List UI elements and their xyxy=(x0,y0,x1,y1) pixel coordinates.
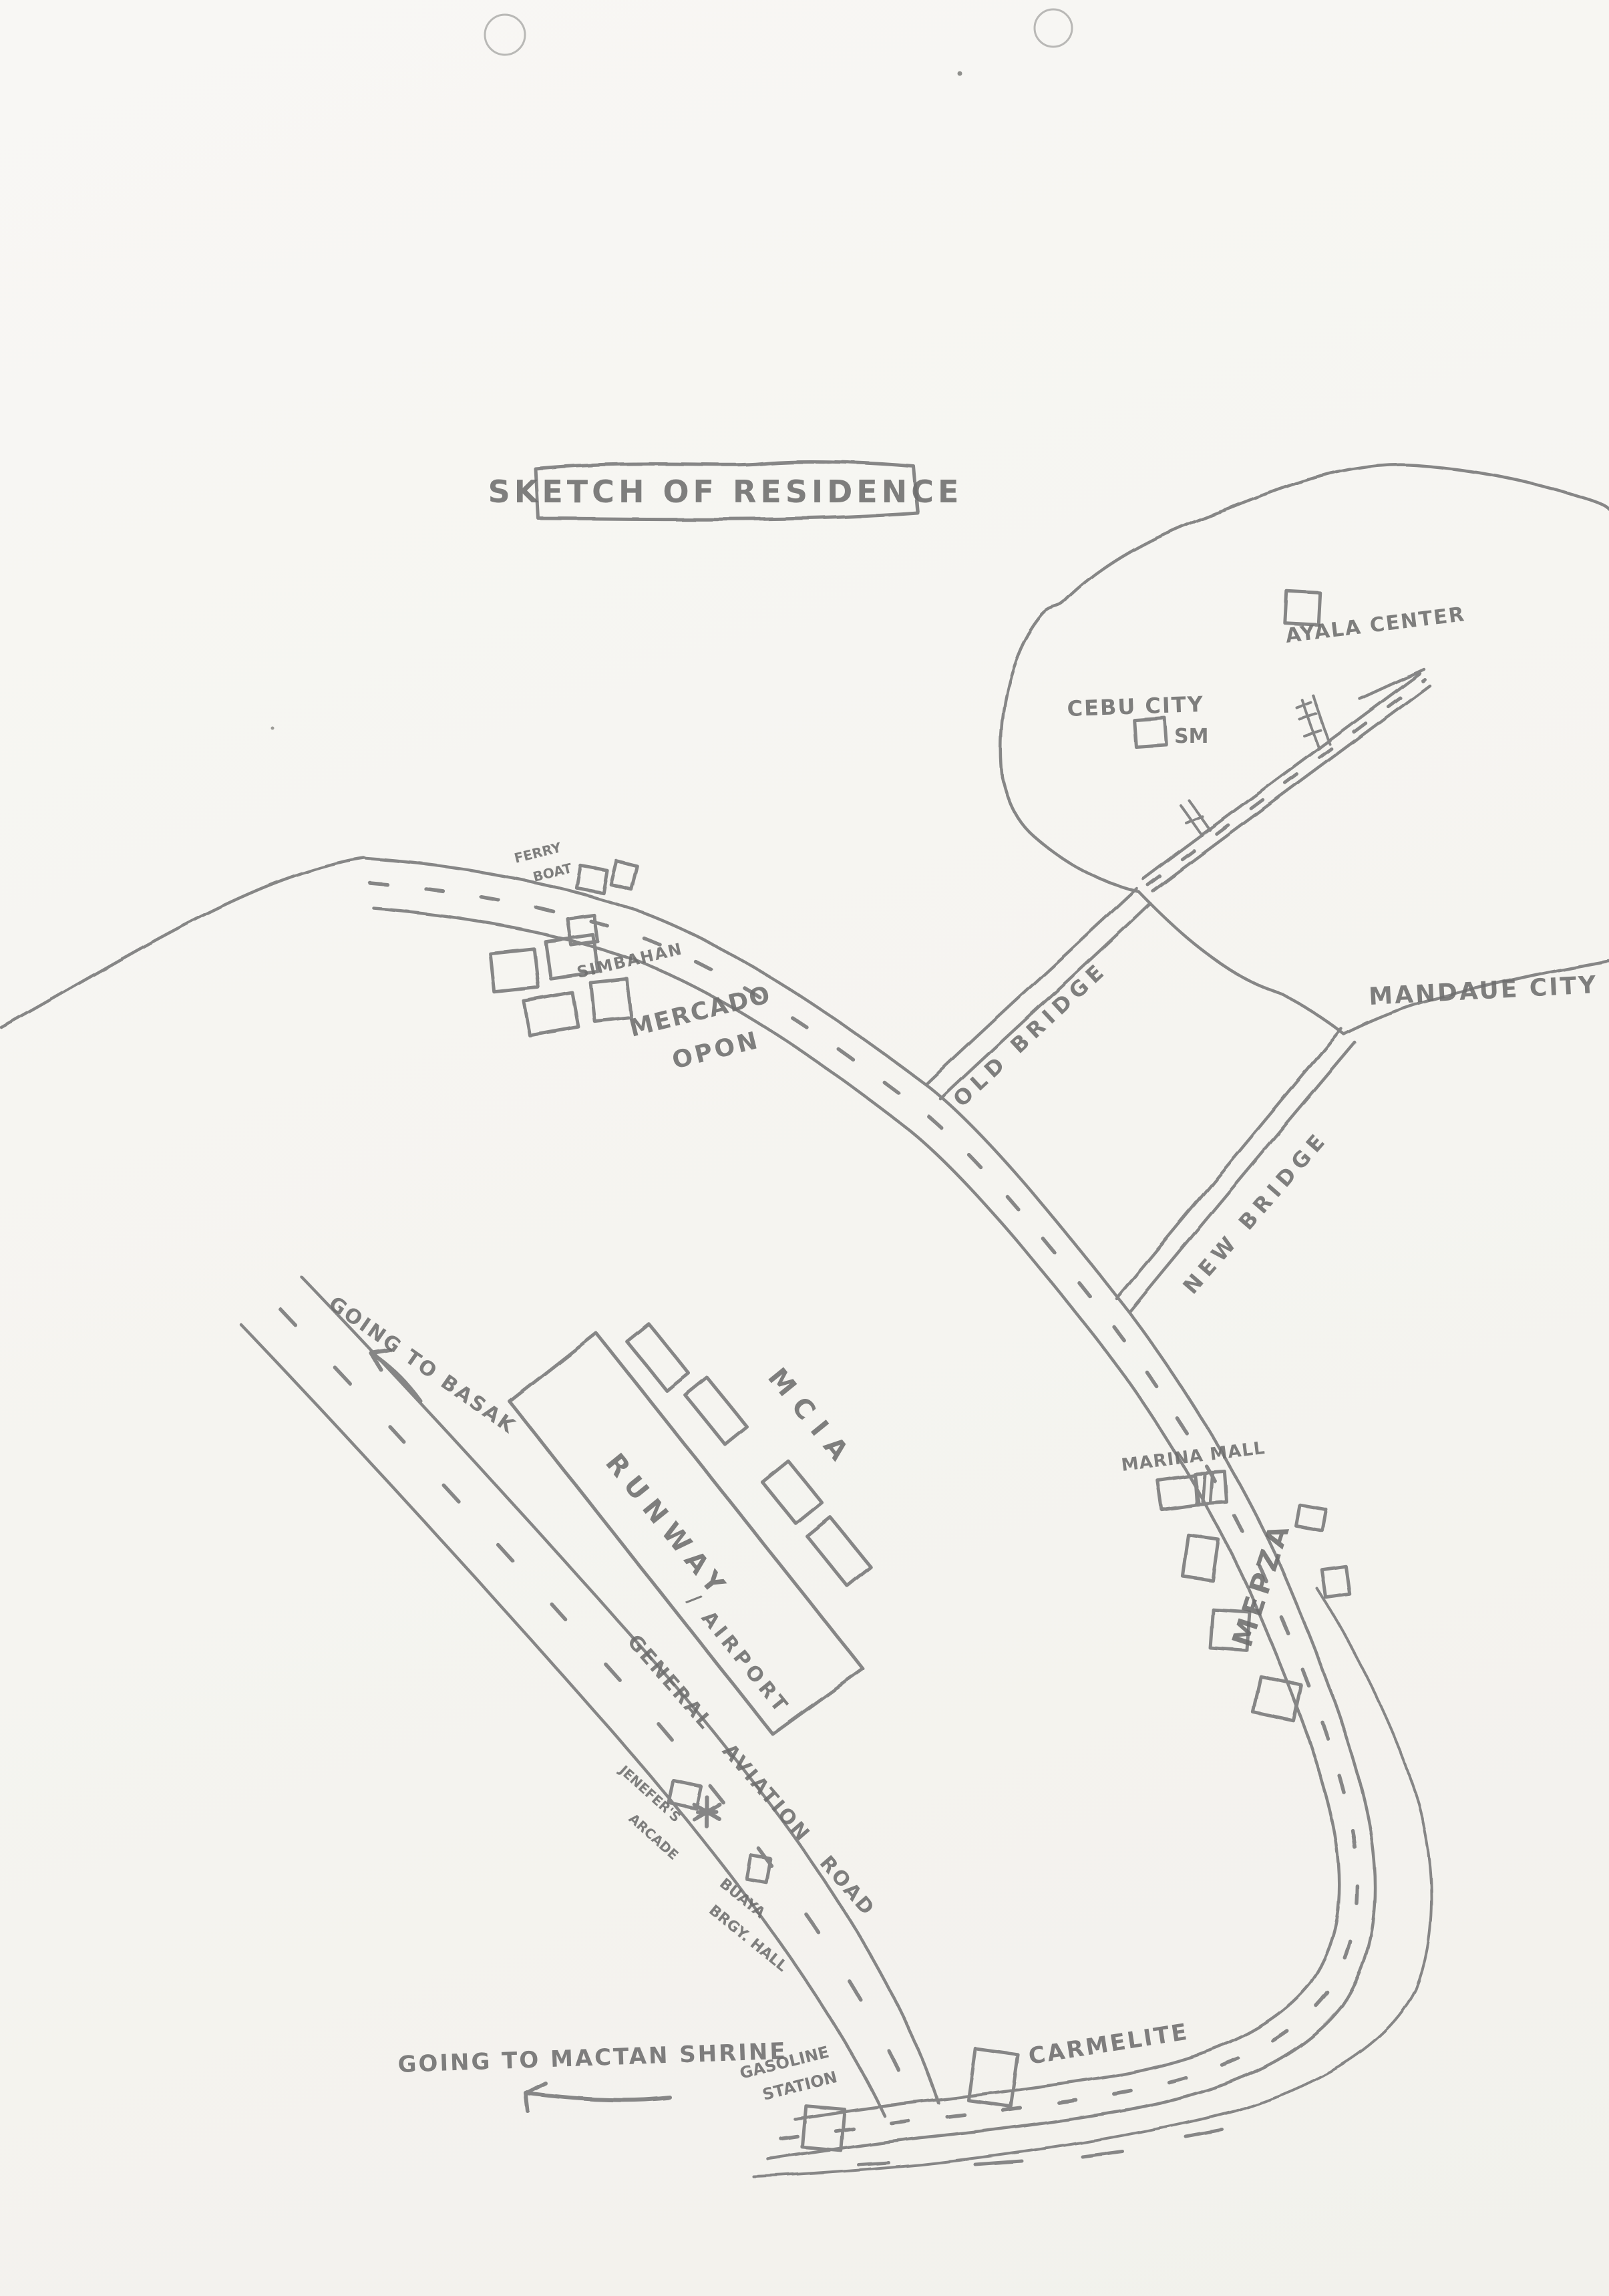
punch-hole-icon xyxy=(485,15,525,55)
page-title: SKETCH OF RESIDENCE xyxy=(488,474,963,510)
marina-mall-building xyxy=(1157,1472,1227,1509)
general-aviation-road xyxy=(242,1277,938,2116)
old-bridge xyxy=(927,888,1150,1099)
label-going-to-basak: GOING TO BASAK xyxy=(324,1292,520,1439)
punch-holes xyxy=(271,9,1073,730)
label-ayala-center: AYALA CENTER xyxy=(1284,603,1467,648)
label-old-bridge: OLD BRIDGE xyxy=(948,956,1112,1112)
label-sm: SM xyxy=(1174,725,1208,748)
sketch-map: SKETCH OF RESIDENCE CEBU CITY SM AYALA C… xyxy=(0,0,1609,2296)
mainland-coastline xyxy=(1001,464,1609,1034)
label-going-to-mactan-shrine: GOING TO MACTAN SHRINE xyxy=(397,2038,787,2078)
label-new-bridge: NEW BRIDGE xyxy=(1178,1126,1333,1299)
label-mercado-line2: OPON xyxy=(669,1027,763,1075)
label-ferry-boat-line1: FERRY xyxy=(512,839,563,866)
label-runway: RUNWAY xyxy=(599,1448,735,1606)
label-cebu-city: CEBU CITY xyxy=(1067,691,1204,721)
label-ferry-boat-line2: BOAT xyxy=(531,860,574,885)
label-mcia: MCIA xyxy=(761,1362,860,1474)
paper-speck xyxy=(958,71,962,76)
label-marina-mall: MARINA MALL xyxy=(1120,1438,1266,1476)
mactan-north-coastline xyxy=(1,858,364,1027)
labels: SKETCH OF RESIDENCE CEBU CITY SM AYALA C… xyxy=(324,474,1598,2104)
ayala-center-building xyxy=(1285,591,1320,625)
scanned-sketch-page: SKETCH OF RESIDENCE CEBU CITY SM AYALA C… xyxy=(0,0,1609,2296)
label-jenefers-arcade-line1: JENEFER'S xyxy=(615,1762,684,1826)
mercado-area-buildings xyxy=(490,915,631,1035)
ferry-area-buildings xyxy=(576,861,637,893)
paper-speck xyxy=(271,727,275,730)
sm-building xyxy=(1134,717,1167,746)
label-carmelite: CARMELITE xyxy=(1027,2018,1191,2070)
label-mandaue-city: MANDAUE CITY xyxy=(1368,971,1598,1011)
carmelite-building xyxy=(968,2049,1018,2106)
buaya-brgy-hall-building xyxy=(747,1856,771,1883)
punch-hole-icon xyxy=(1035,9,1072,47)
shore-dashes xyxy=(858,2130,1222,2164)
mactan-shrine-arrow-icon xyxy=(526,2083,670,2111)
new-bridge xyxy=(1117,1029,1355,1311)
